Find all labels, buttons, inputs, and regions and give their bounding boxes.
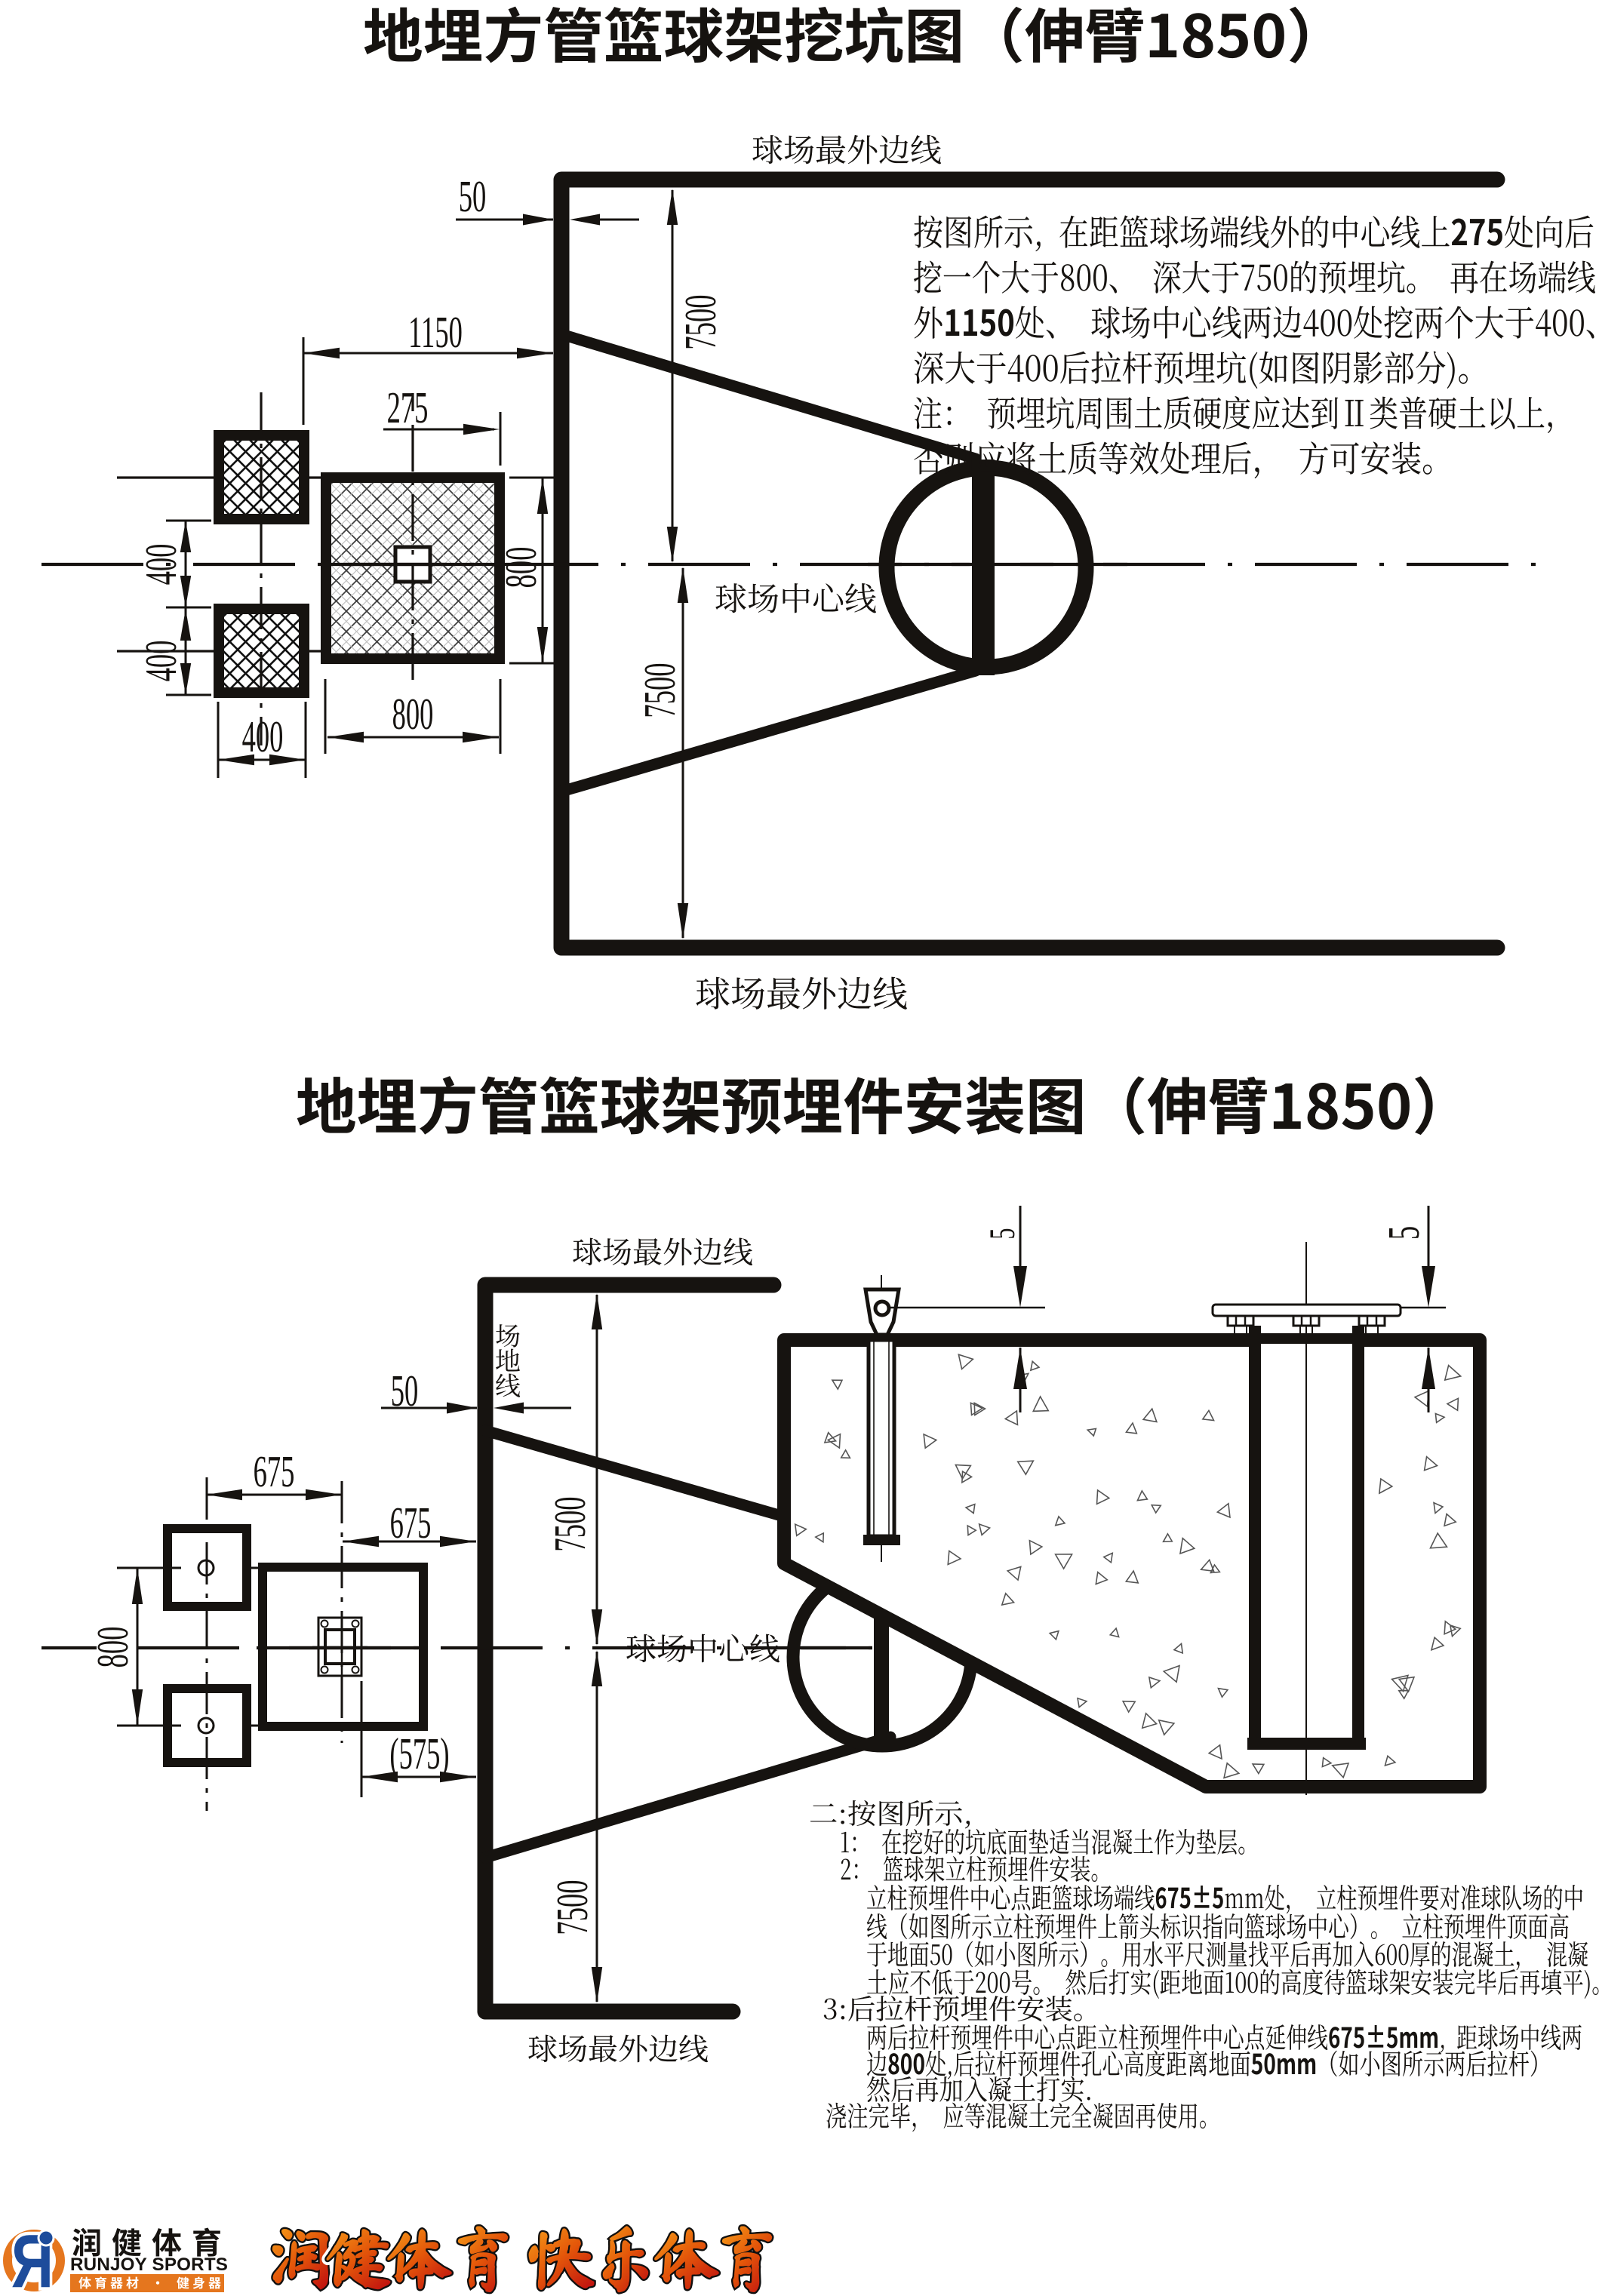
svg-text:275: 275 [387,383,429,432]
svg-text:(575): (575) [389,1729,449,1778]
svg-text:800: 800 [392,689,434,739]
svg-text:50: 50 [459,171,487,221]
svg-text:675: 675 [254,1446,295,1496]
svg-text:800: 800 [88,1627,137,1668]
svg-text:5: 5 [982,1228,1022,1240]
svg-text:400: 400 [136,544,186,586]
svg-text:7500: 7500 [545,1496,595,1551]
svg-text:800: 800 [496,547,546,589]
svg-text:675: 675 [390,1498,432,1548]
svg-text:5: 5 [1379,1226,1428,1240]
svg-text:7500: 7500 [675,294,725,349]
svg-text:1150: 1150 [408,307,463,357]
svg-text:7500: 7500 [635,662,684,718]
svg-text:7500: 7500 [547,1880,597,1935]
svg-text:RUNJOY SPORTS: RUNJOY SPORTS [70,2255,228,2275]
svg-text:400: 400 [242,712,284,761]
svg-text:400: 400 [136,641,186,682]
